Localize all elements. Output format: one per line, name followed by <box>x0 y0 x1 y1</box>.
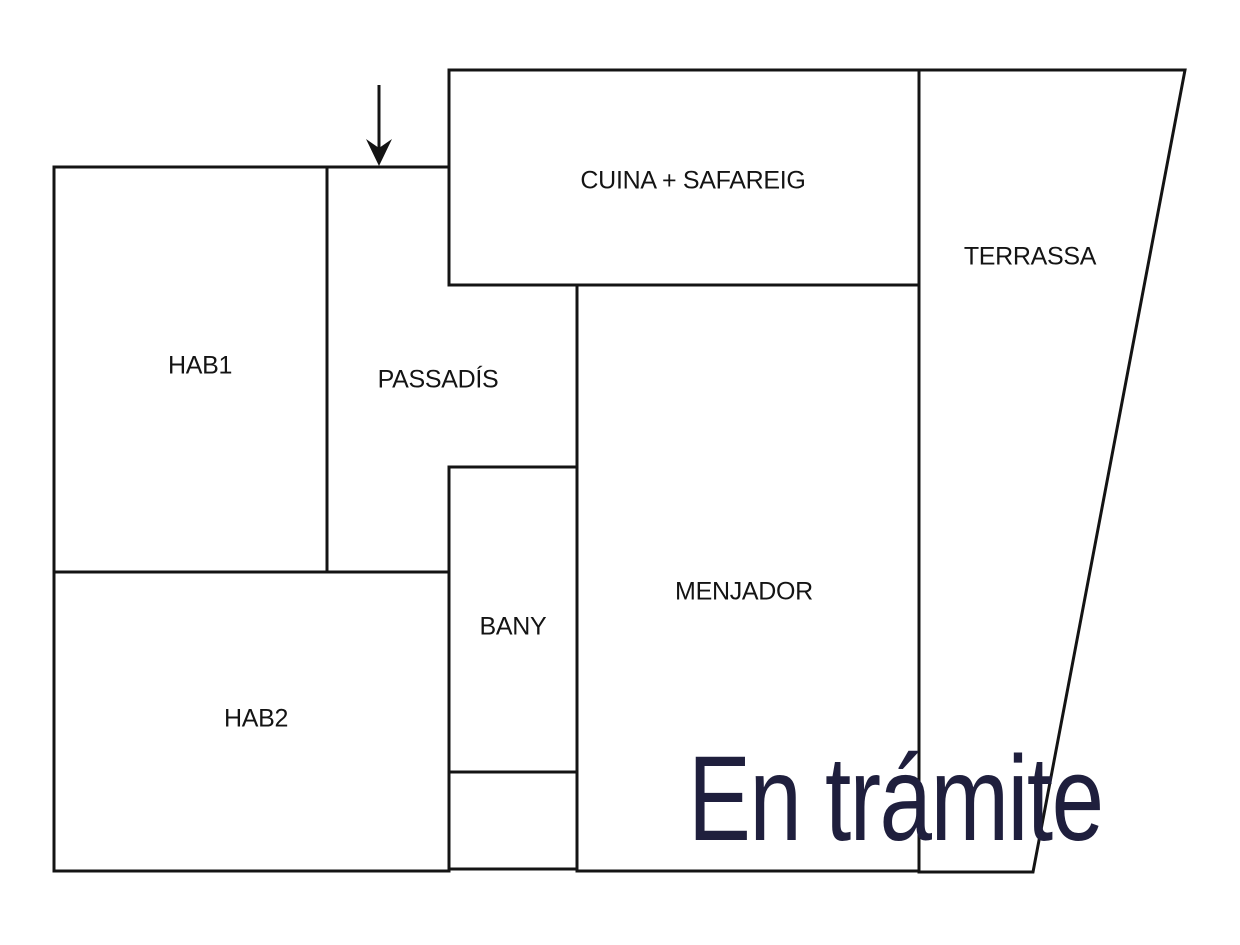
room-label-passadis: PASSADÍS <box>378 366 499 395</box>
room-label-hab2: HAB2 <box>224 705 288 734</box>
room-label-menjador: MENJADOR <box>675 578 813 607</box>
room-label-hab1: HAB1 <box>168 352 232 381</box>
room-label-terrassa: TERRASSA <box>964 243 1096 272</box>
closet-outline <box>449 772 577 869</box>
entry-arrow-down-icon <box>366 85 392 166</box>
room-label-cuina: CUINA + SAFAREIG <box>580 167 805 196</box>
floor-plan: En trámite CUINA + SAFAREIG TE <box>0 0 1240 945</box>
watermark-text: En trámite <box>688 738 1103 859</box>
room-label-bany: BANY <box>480 613 547 642</box>
